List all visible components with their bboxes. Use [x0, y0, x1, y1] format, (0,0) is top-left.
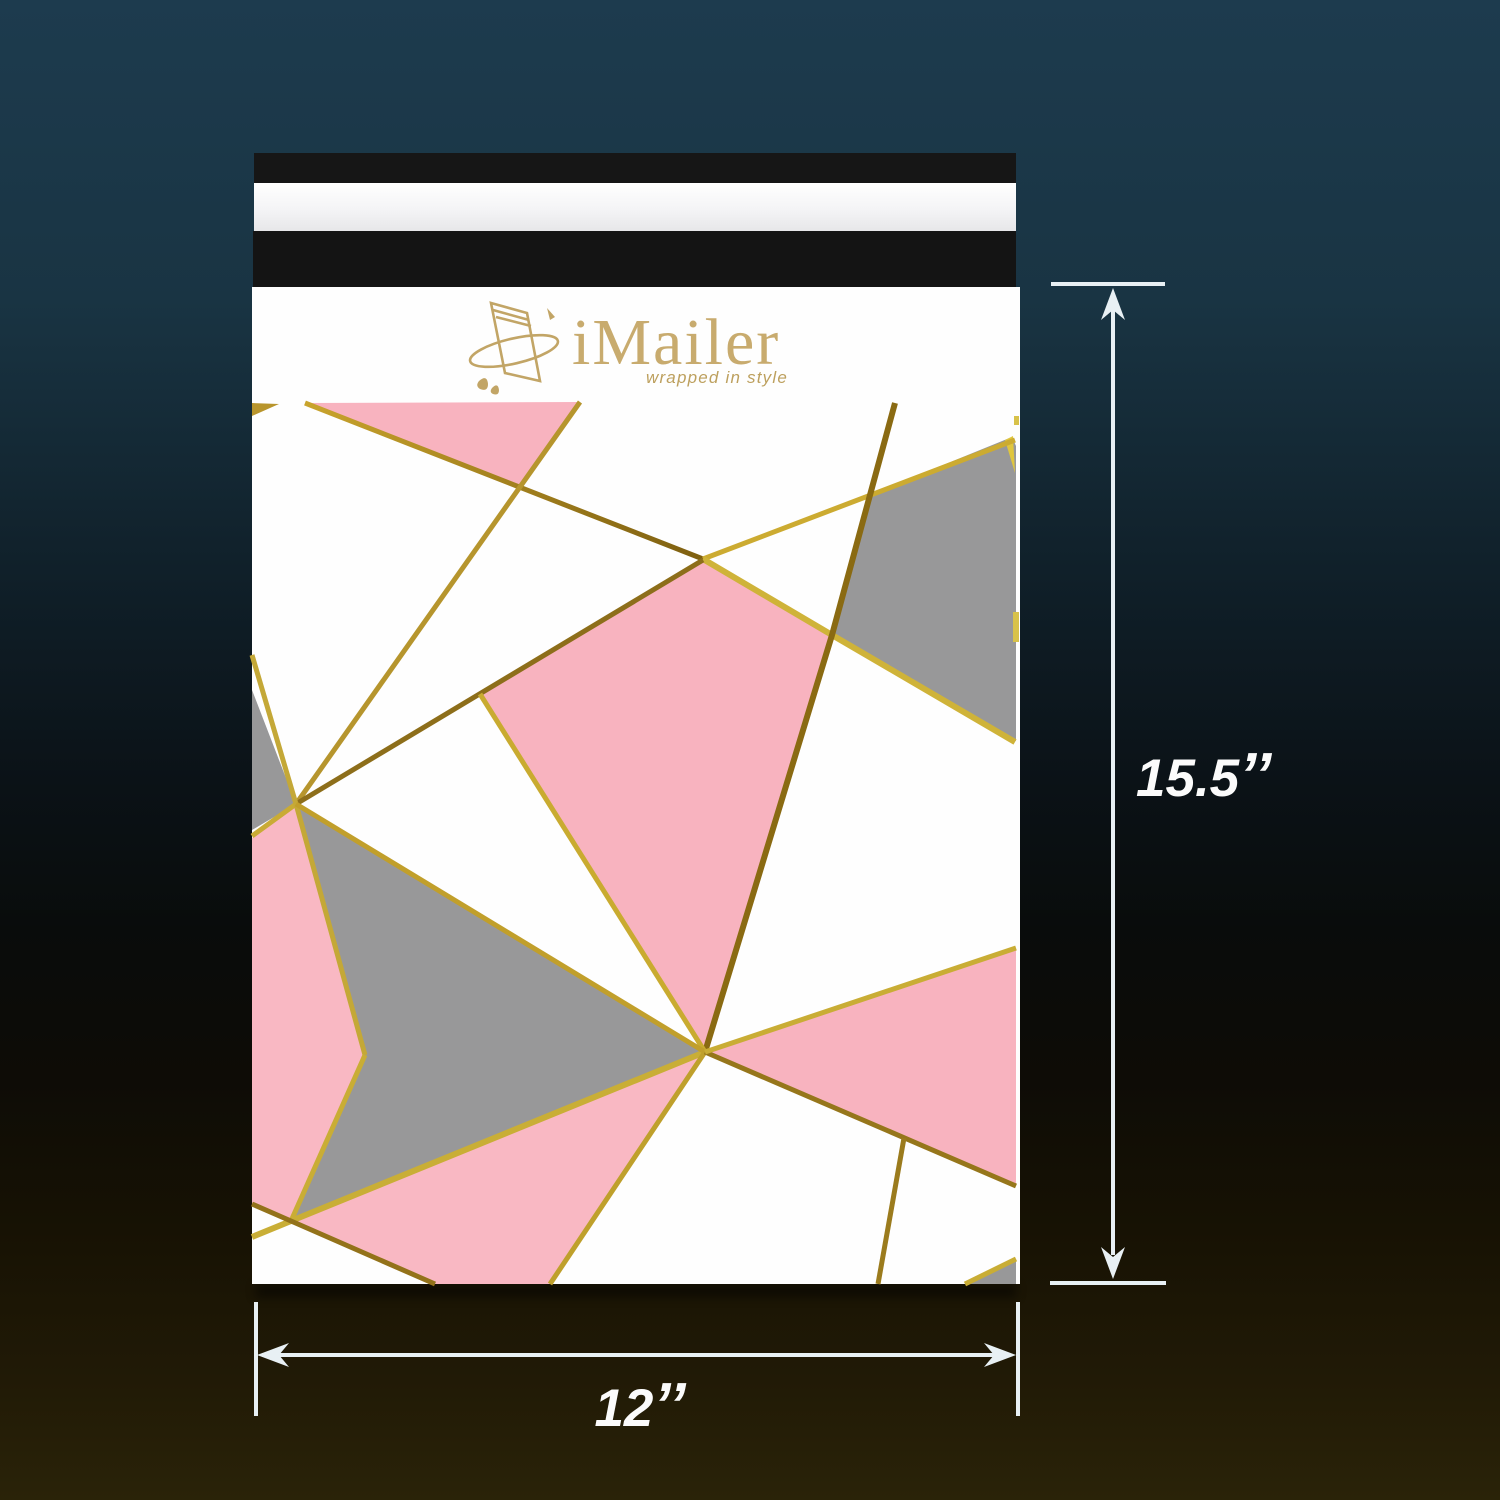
svg-text:15.5’’: 15.5’’ [1136, 741, 1272, 810]
svg-text:wrapped in style: wrapped in style [646, 368, 788, 387]
svg-text:12’’: 12’’ [594, 1371, 686, 1440]
